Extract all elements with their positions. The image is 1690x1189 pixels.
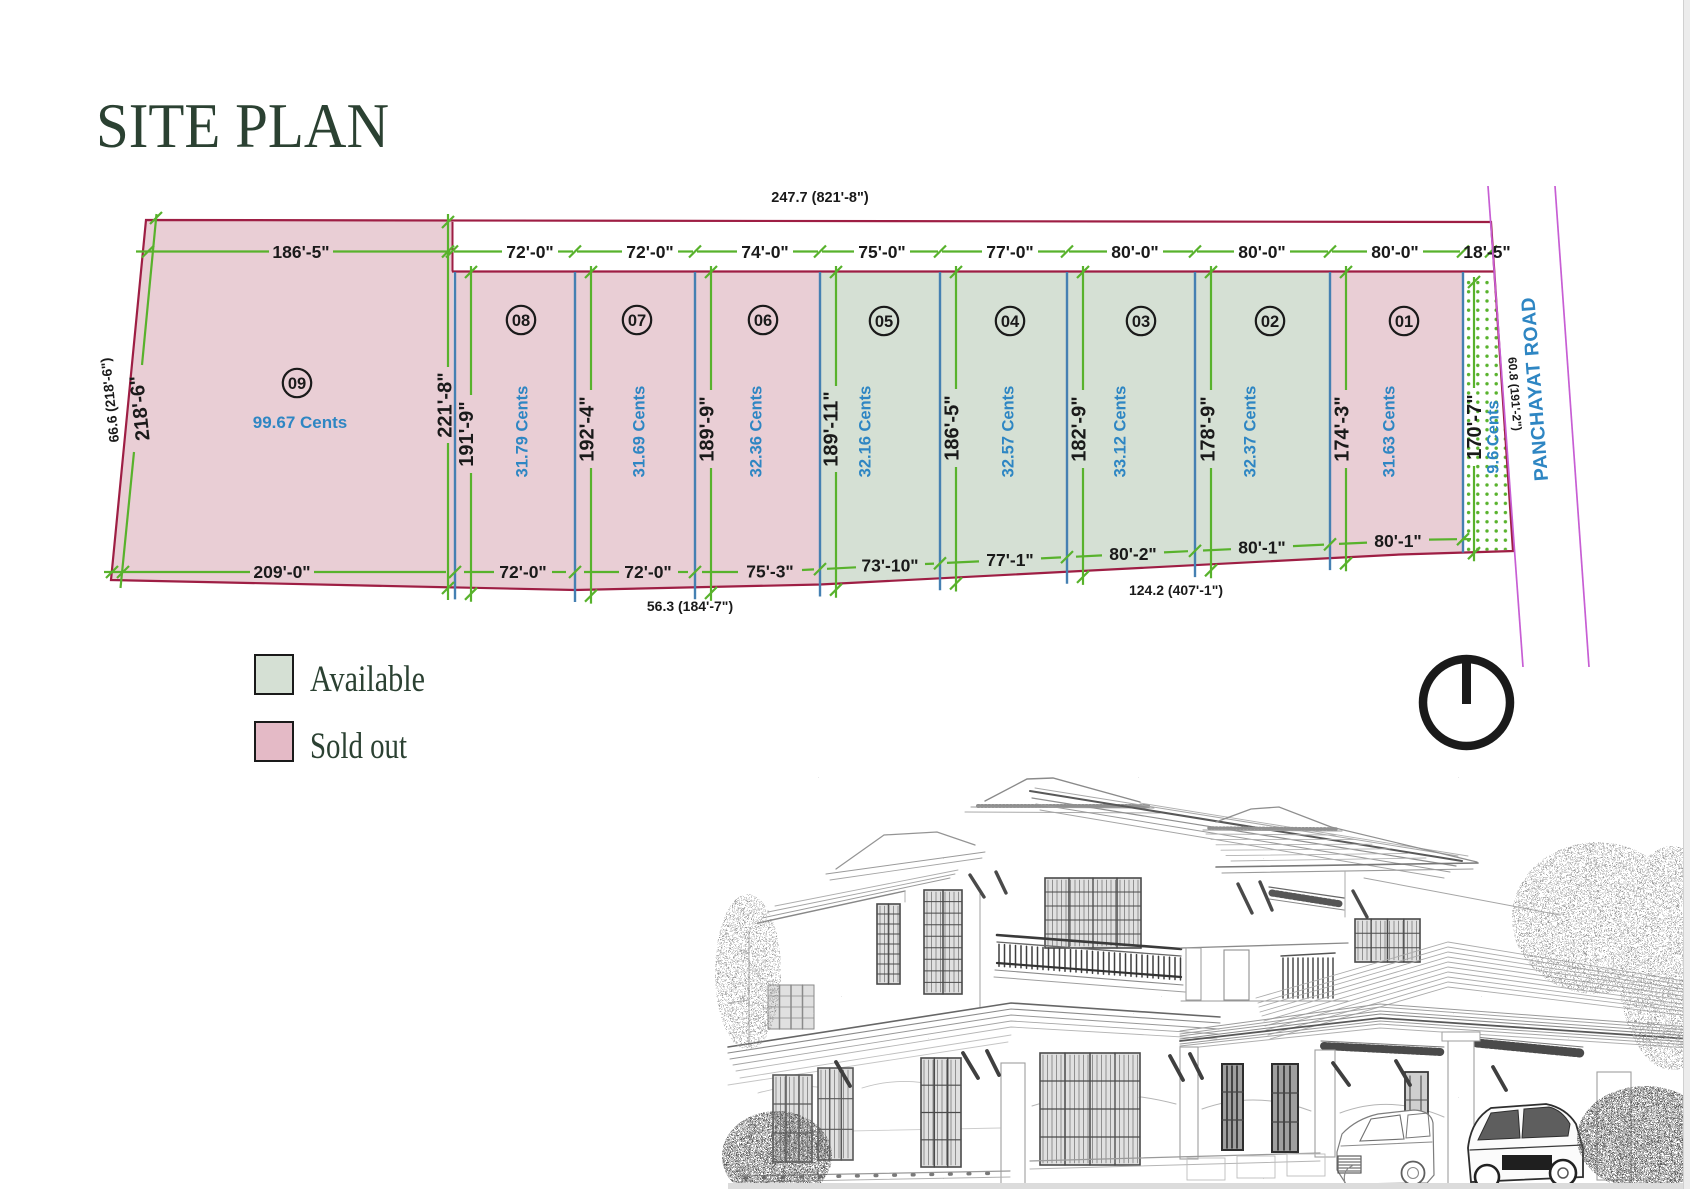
svg-text:31.63 Cents: 31.63 Cents bbox=[1380, 386, 1398, 478]
svg-text:124.2 (407'-1"): 124.2 (407'-1") bbox=[1129, 582, 1223, 598]
svg-text:170'-7": 170'-7" bbox=[1464, 394, 1486, 459]
svg-text:80'-0": 80'-0" bbox=[1111, 242, 1158, 262]
svg-text:06: 06 bbox=[754, 312, 772, 330]
svg-text:9.6 Cents: 9.6 Cents bbox=[1484, 400, 1502, 473]
svg-text:209'-0": 209'-0" bbox=[253, 562, 310, 582]
svg-text:186'-5": 186'-5" bbox=[941, 395, 963, 460]
svg-text:77'-0": 77'-0" bbox=[986, 242, 1033, 262]
svg-text:32.16 Cents: 32.16 Cents bbox=[856, 386, 874, 478]
svg-text:02: 02 bbox=[1261, 313, 1279, 331]
svg-text:75'-3": 75'-3" bbox=[746, 562, 793, 582]
svg-text:56.3 (184'-7"): 56.3 (184'-7") bbox=[647, 598, 733, 614]
svg-text:189'-9": 189'-9" bbox=[696, 396, 718, 461]
svg-text:05: 05 bbox=[875, 313, 893, 331]
svg-text:33.12 Cents: 33.12 Cents bbox=[1111, 386, 1129, 478]
svg-text:189'-11": 189'-11" bbox=[820, 391, 842, 466]
svg-text:04: 04 bbox=[1001, 313, 1020, 331]
svg-text:72'-0": 72'-0" bbox=[499, 562, 546, 582]
svg-text:31.79 Cents: 31.79 Cents bbox=[513, 386, 531, 478]
svg-text:Sold out: Sold out bbox=[310, 726, 408, 767]
svg-text:80'-1": 80'-1" bbox=[1238, 538, 1285, 558]
svg-text:31.69 Cents: 31.69 Cents bbox=[630, 386, 648, 478]
svg-text:178'-9": 178'-9" bbox=[1197, 396, 1219, 461]
svg-text:08: 08 bbox=[512, 312, 530, 330]
svg-text:80'-1": 80'-1" bbox=[1374, 531, 1421, 551]
svg-text:80'-0": 80'-0" bbox=[1371, 242, 1418, 262]
svg-text:32.36 Cents: 32.36 Cents bbox=[747, 386, 765, 478]
svg-text:182'-9": 182'-9" bbox=[1068, 396, 1090, 461]
svg-text:192'-4": 192'-4" bbox=[576, 396, 598, 461]
svg-text:80'-2": 80'-2" bbox=[1109, 544, 1156, 564]
svg-text:32.57 Cents: 32.57 Cents bbox=[999, 386, 1017, 478]
svg-text:01: 01 bbox=[1395, 313, 1413, 331]
svg-text:18'-5": 18'-5" bbox=[1463, 242, 1510, 262]
svg-text:72'-0": 72'-0" bbox=[506, 242, 553, 262]
svg-text:32.37 Cents: 32.37 Cents bbox=[1241, 386, 1259, 478]
svg-text:03: 03 bbox=[1132, 313, 1150, 331]
svg-text:99.67 Cents: 99.67 Cents bbox=[253, 413, 348, 432]
svg-text:186'-5": 186'-5" bbox=[272, 242, 329, 262]
svg-text:247.7 (821'-8"): 247.7 (821'-8") bbox=[771, 190, 869, 206]
svg-text:Available: Available bbox=[310, 659, 425, 700]
svg-text:07: 07 bbox=[628, 312, 646, 330]
svg-text:72'-0": 72'-0" bbox=[624, 562, 671, 582]
svg-text:174'-3": 174'-3" bbox=[1331, 396, 1353, 461]
svg-text:SITE PLAN: SITE PLAN bbox=[96, 91, 389, 161]
svg-text:75'-0": 75'-0" bbox=[858, 242, 905, 262]
svg-text:221'-8": 221'-8" bbox=[434, 372, 456, 437]
svg-text:191'-9": 191'-9" bbox=[456, 401, 478, 466]
svg-text:77'-1": 77'-1" bbox=[986, 550, 1033, 570]
svg-text:72'-0": 72'-0" bbox=[626, 242, 673, 262]
svg-text:80'-0": 80'-0" bbox=[1238, 242, 1285, 262]
svg-text:74'-0": 74'-0" bbox=[741, 242, 788, 262]
svg-text:73'-10": 73'-10" bbox=[861, 556, 918, 576]
svg-text:09: 09 bbox=[288, 375, 306, 393]
